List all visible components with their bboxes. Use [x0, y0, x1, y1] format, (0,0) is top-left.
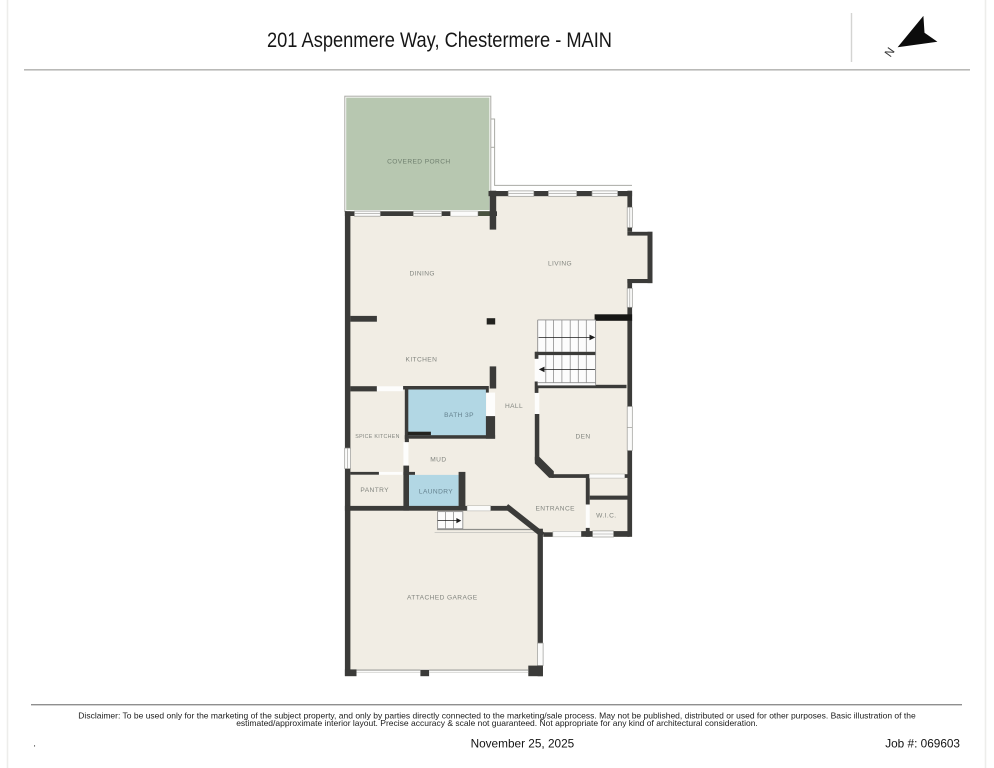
svg-text:November 25, 2025: November 25, 2025: [471, 737, 575, 751]
svg-text:W.I.C.: W.I.C.: [596, 513, 616, 520]
svg-text:ENTRANCE: ENTRANCE: [535, 505, 575, 512]
svg-text:DEN: DEN: [575, 433, 590, 440]
svg-text:COVERED PORCH: COVERED PORCH: [387, 158, 450, 165]
svg-text:estimated/approximate interior: estimated/approximate interior layout. P…: [236, 718, 758, 728]
svg-text:Job #: 069603: Job #: 069603: [885, 737, 960, 751]
svg-text:MUD: MUD: [430, 457, 446, 464]
svg-text:201 Aspenmere Way, Chestermere: 201 Aspenmere Way, Chestermere - MAIN: [267, 28, 612, 52]
svg-text:LAUNDRY: LAUNDRY: [419, 489, 453, 496]
svg-text:DINING: DINING: [409, 270, 434, 277]
svg-text:LIVING: LIVING: [548, 261, 572, 268]
svg-text:BATH 3P: BATH 3P: [444, 412, 474, 419]
svg-text:HALL: HALL: [505, 403, 523, 410]
svg-text:.: .: [33, 738, 36, 750]
svg-text:ATTACHED GARAGE: ATTACHED GARAGE: [407, 595, 478, 602]
svg-text:PANTRY: PANTRY: [360, 487, 389, 494]
svg-text:SPICE KITCHEN: SPICE KITCHEN: [355, 434, 400, 440]
svg-text:KITCHEN: KITCHEN: [406, 357, 438, 364]
